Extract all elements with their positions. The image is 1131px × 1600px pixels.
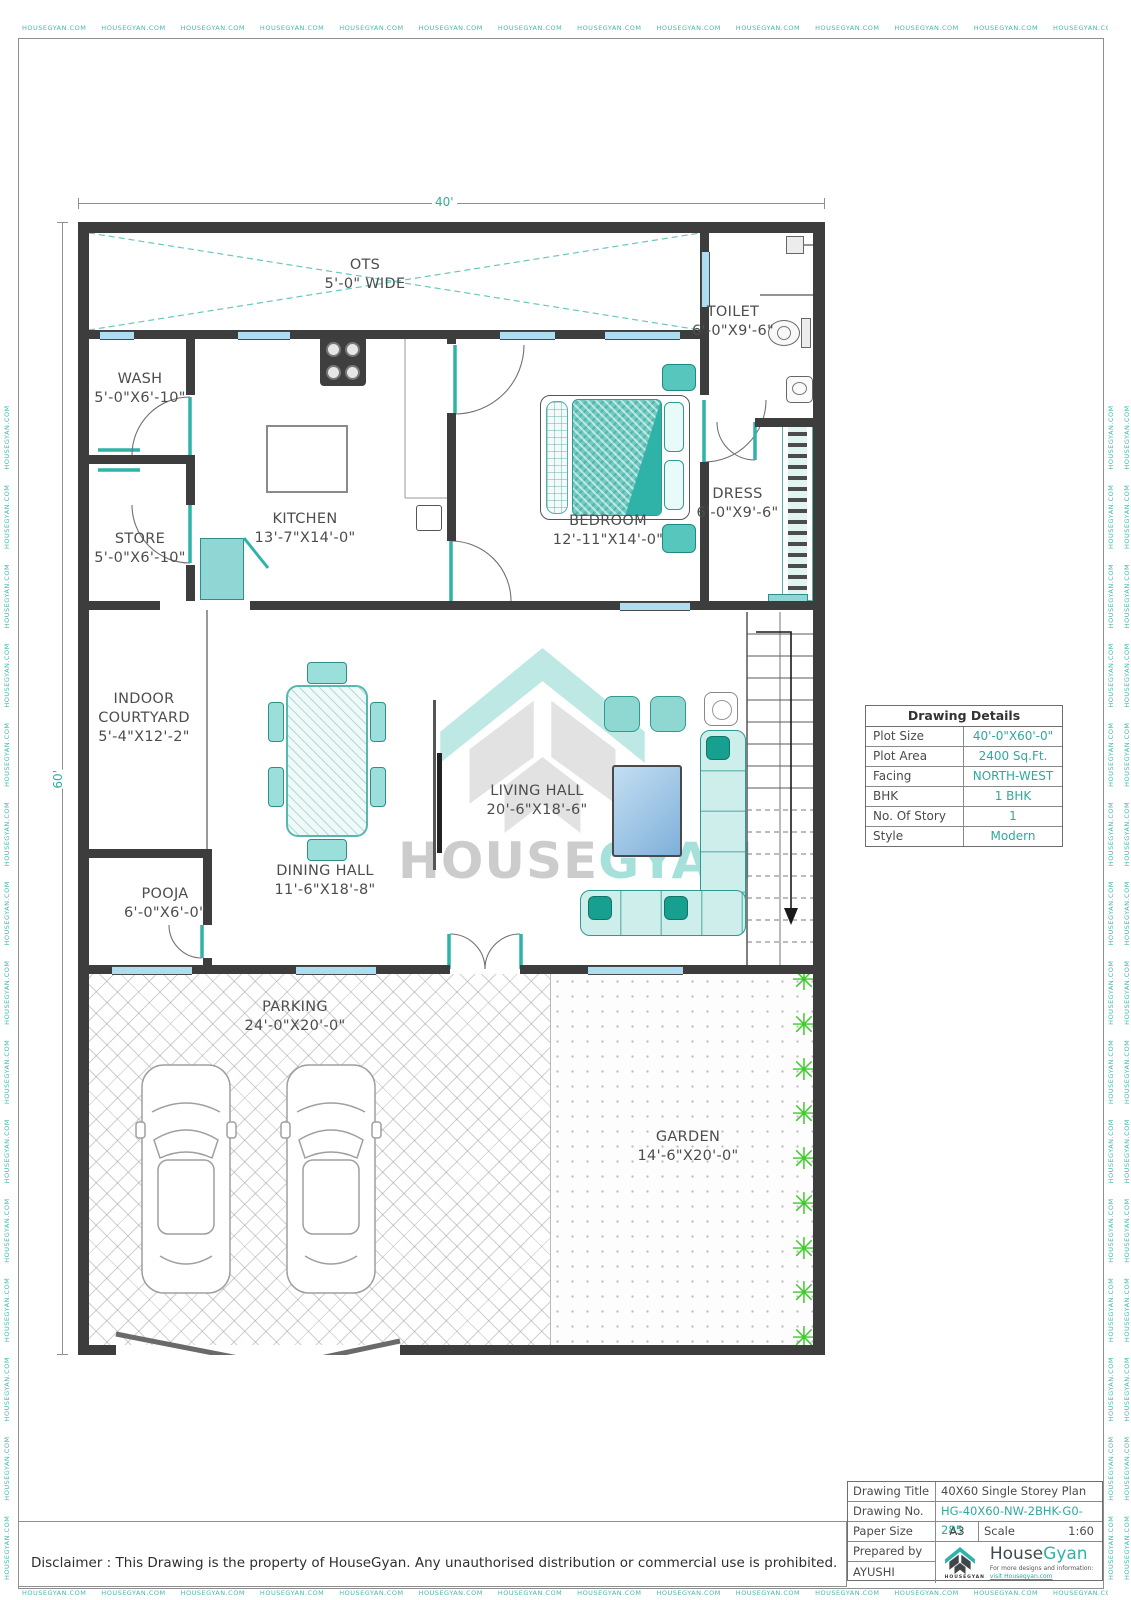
- room-size: 20'-6"X18'-6": [487, 802, 588, 818]
- wall-segment: [813, 222, 825, 1355]
- field-label: Paper Size: [848, 1522, 936, 1541]
- detail-value: NORTH-WEST: [964, 767, 1062, 786]
- burner-icon: [326, 342, 341, 357]
- burner-icon: [326, 365, 341, 380]
- dining-chair: [268, 767, 284, 807]
- room-label-store: STORE 5'-0"X6'-10": [80, 530, 200, 568]
- dim-tick: [57, 222, 68, 223]
- room-name: DINING HALL: [276, 863, 374, 879]
- dim-tick: [57, 1354, 68, 1355]
- drawing-details-table: Drawing Details Plot Size 40'-0"X60'-0" …: [865, 705, 1063, 847]
- parking-garden-divider: [550, 974, 551, 1345]
- washbasin: [786, 376, 813, 403]
- tagline-line1: For more designs and information:: [990, 1565, 1094, 1572]
- sofa-plant: [706, 736, 730, 760]
- detail-value: 1: [964, 807, 1062, 826]
- dimension-top-label: 40': [432, 195, 457, 209]
- room-size: 6'-0"X9'-6": [697, 505, 779, 521]
- watermark-house: HOUSE: [398, 832, 598, 890]
- scale-label: Scale: [978, 1522, 1034, 1541]
- wall-segment: [88, 849, 212, 858]
- wall-segment: [203, 958, 212, 965]
- window: [701, 252, 710, 307]
- center-table: [612, 765, 682, 857]
- detail-label: Style: [866, 827, 964, 846]
- basin-detail: [792, 382, 807, 395]
- housegyan-logo-icon: HOUSEGYAN: [945, 1547, 985, 1580]
- logo-gyan: Gyan: [1043, 1544, 1087, 1564]
- room-label-pooja: POOJA 6'-0"X6'-0": [100, 885, 230, 923]
- logo-tagline: For more designs and information: visit …: [990, 1565, 1094, 1581]
- room-name: TOILET: [707, 304, 759, 320]
- detail-value: 40'-0"X60'-0": [964, 727, 1062, 746]
- room-name: GARDEN: [656, 1129, 720, 1145]
- housegyan-link[interactable]: visit Housegyan.com: [990, 1573, 1053, 1580]
- room-name: BEDROOM: [569, 513, 647, 529]
- title-block-row: Drawing Title 40X60 Single Storey Plan: [848, 1482, 1102, 1502]
- room-size: 5'-0"X6'-10": [94, 390, 185, 406]
- sofa-plant: [588, 896, 612, 920]
- window: [588, 966, 683, 975]
- room-label-living: LIVING HALL 20'-6"X18'-6": [452, 782, 622, 820]
- window: [100, 331, 134, 340]
- burner-icon: [345, 342, 360, 357]
- field-label: Drawing Title: [848, 1482, 936, 1501]
- table-row: Style Modern: [866, 827, 1062, 846]
- window: [296, 966, 376, 975]
- table-row: No. Of Story 1: [866, 807, 1062, 827]
- wall-segment: [755, 418, 813, 427]
- room-name: DRESS: [712, 486, 762, 502]
- wall-segment: [250, 601, 447, 610]
- table-row: BHK 1 BHK: [866, 787, 1062, 807]
- wall-segment: [186, 455, 195, 505]
- lamp-detail: [712, 700, 732, 720]
- room-label-toilet: TOILET 6'-0"X9'-6": [648, 303, 818, 341]
- room-name: STORE: [115, 531, 165, 547]
- window: [112, 966, 192, 975]
- table-row: Plot Size 40'-0"X60'-0": [866, 727, 1062, 747]
- logo-cell: HOUSEGYAN HouseGyan For more designs and…: [936, 1542, 1102, 1583]
- prepared-by-label: Prepared by: [848, 1542, 935, 1562]
- title-block-row: Paper Size A3 Scale 1:60: [848, 1522, 1102, 1542]
- kitchen-sink: [416, 505, 442, 531]
- room-label-kitchen: KITCHEN 13'-7"X14'-0": [235, 510, 375, 548]
- kitchen-island: [266, 425, 348, 493]
- scale-value: 1:60: [1034, 1522, 1102, 1541]
- room-size: 14'-6"X20'-0": [638, 1148, 739, 1164]
- title-block: Drawing Title 40X60 Single Storey Plan D…: [847, 1481, 1103, 1581]
- dim-tick: [78, 198, 79, 209]
- pouffe: [650, 696, 686, 732]
- detail-label: Plot Area: [866, 747, 964, 766]
- watermark-right: HOUSEGYAN.COM HOUSEGYAN.COM HOUSEGYAN.CO…: [1107, 40, 1115, 1580]
- shower-head: [786, 236, 804, 254]
- room-size: 11'-6"X18'-8": [275, 882, 376, 898]
- room-name: OTS: [350, 257, 380, 273]
- room-size: 5'-0"X6'-10": [94, 550, 185, 566]
- title-block-row: Prepared by AYUSHI HOUSEGYAN HouseGyan: [848, 1542, 1102, 1583]
- room-size: 6'-0"X6'-0": [124, 905, 206, 921]
- wall-segment: [88, 601, 160, 610]
- room-name: POOJA: [141, 886, 188, 902]
- wall-segment: [88, 455, 186, 464]
- watermark-bottom: HOUSEGYAN.COM HOUSEGYAN.COM HOUSEGYAN.CO…: [22, 1589, 1108, 1597]
- window: [500, 331, 555, 340]
- detail-label: Plot Size: [866, 727, 964, 746]
- floor-lamp: [704, 692, 738, 726]
- bed-blanket: [572, 399, 662, 516]
- room-name: WASH: [118, 371, 163, 387]
- table-row: Plot Area 2400 Sq.Ft.: [866, 747, 1062, 767]
- room-size: 12'-11"X14'-0": [553, 532, 664, 548]
- title-block-row: Drawing No. HG-40X60-NW-2BHK-G0-285: [848, 1502, 1102, 1522]
- dining-chair: [268, 702, 284, 742]
- detail-value: 1 BHK: [964, 787, 1062, 806]
- room-label-ots: OTS 5'-0" WIDE: [265, 256, 465, 294]
- wall-segment: [78, 222, 825, 233]
- dimension-left-label: 60': [48, 770, 68, 789]
- room-label-parking: PARKING 24'-0"X20'-0": [220, 998, 370, 1036]
- drawing-title-value: 40X60 Single Storey Plan: [936, 1482, 1102, 1501]
- room-label-wash: WASH 5'-0"X6'-10": [80, 370, 200, 408]
- paper-size-value: A3: [936, 1522, 978, 1541]
- disclaimer-box: Disclaimer : This Drawing is the propert…: [18, 1521, 847, 1587]
- watermark-left: HOUSEGYAN.COM HOUSEGYAN.COM HOUSEGYAN.CO…: [3, 40, 11, 1580]
- sofa-plant: [664, 896, 688, 920]
- table-row: Facing NORTH-WEST: [866, 767, 1062, 787]
- dim-tick: [824, 198, 825, 209]
- room-name: KITCHEN: [273, 511, 338, 527]
- blanket-fold: [625, 400, 661, 516]
- room-size: 6'-0"X9'-6": [692, 323, 774, 339]
- room-size: 24'-0"X20'-0": [245, 1018, 346, 1034]
- wall-segment: [186, 565, 195, 601]
- drawing-details-title: Drawing Details: [866, 706, 1062, 727]
- dining-table: [286, 685, 368, 837]
- tv: [437, 753, 442, 853]
- logo-caption: HOUSEGYAN: [945, 1575, 985, 1580]
- window: [620, 602, 690, 611]
- room-label-dining: DINING HALL 11'-6"X18'-8": [245, 862, 405, 900]
- detail-label: BHK: [866, 787, 964, 806]
- dining-chair: [307, 662, 347, 684]
- room-label-courtyard: INDOOR COURTYARD 5'-4"X12'-2": [80, 690, 208, 747]
- room-label-dress: DRESS 6'-0"X9'-6": [665, 485, 810, 523]
- room-name: PARKING: [262, 999, 328, 1015]
- dining-chair: [370, 767, 386, 807]
- prepared-by-cell: Prepared by AYUSHI: [848, 1542, 936, 1583]
- wall-segment: [447, 413, 456, 541]
- dining-chair: [307, 839, 347, 861]
- pillow: [664, 402, 684, 452]
- drawing-no-value: HG-40X60-NW-2BHK-G0-285: [936, 1502, 1102, 1521]
- floor-plan-sheet: HOUSEGYAN.COM HOUSEGYAN.COM HOUSEGYAN.CO…: [0, 0, 1131, 1600]
- pouffe: [604, 696, 640, 732]
- window: [238, 331, 290, 340]
- detail-value: 2400 Sq.Ft.: [964, 747, 1062, 766]
- watermark-top: HOUSEGYAN.COM HOUSEGYAN.COM HOUSEGYAN.CO…: [22, 24, 1108, 32]
- detail-value: Modern: [964, 827, 1062, 846]
- wall-segment: [400, 1345, 825, 1355]
- detail-label: No. Of Story: [866, 807, 964, 826]
- detail-label: Facing: [866, 767, 964, 786]
- stove: [320, 336, 366, 386]
- disclaimer-text: Disclaimer : This Drawing is the propert…: [31, 1555, 837, 1571]
- room-name: LIVING HALL: [490, 783, 584, 799]
- burner-icon: [345, 365, 360, 380]
- dining-chair: [370, 702, 386, 742]
- field-label: Drawing No.: [848, 1502, 936, 1521]
- wall-segment: [447, 330, 456, 344]
- room-size: 13'-7"X14'-0": [255, 530, 356, 546]
- logo-wordmark: HouseGyan: [990, 1546, 1094, 1563]
- room-name: INDOOR COURTYARD: [98, 691, 190, 726]
- nightstand: [662, 364, 696, 391]
- watermark-right-outer: HOUSEGYAN.COM HOUSEGYAN.COM HOUSEGYAN.CO…: [1123, 40, 1131, 1580]
- living-dining-partition: [433, 700, 436, 870]
- logo-house: House: [990, 1544, 1043, 1564]
- room-size: 5'-4"X12'-2": [98, 729, 189, 745]
- prepared-by-value: AYUSHI: [848, 1562, 935, 1583]
- room-size: 5'-0" WIDE: [325, 276, 406, 292]
- bedside-runner: [546, 401, 568, 514]
- room-label-bedroom: BEDROOM 12'-11"X14'-0": [528, 512, 688, 550]
- room-label-garden: GARDEN 14'-6"X20'-0": [608, 1128, 768, 1166]
- wall-segment: [78, 1345, 116, 1355]
